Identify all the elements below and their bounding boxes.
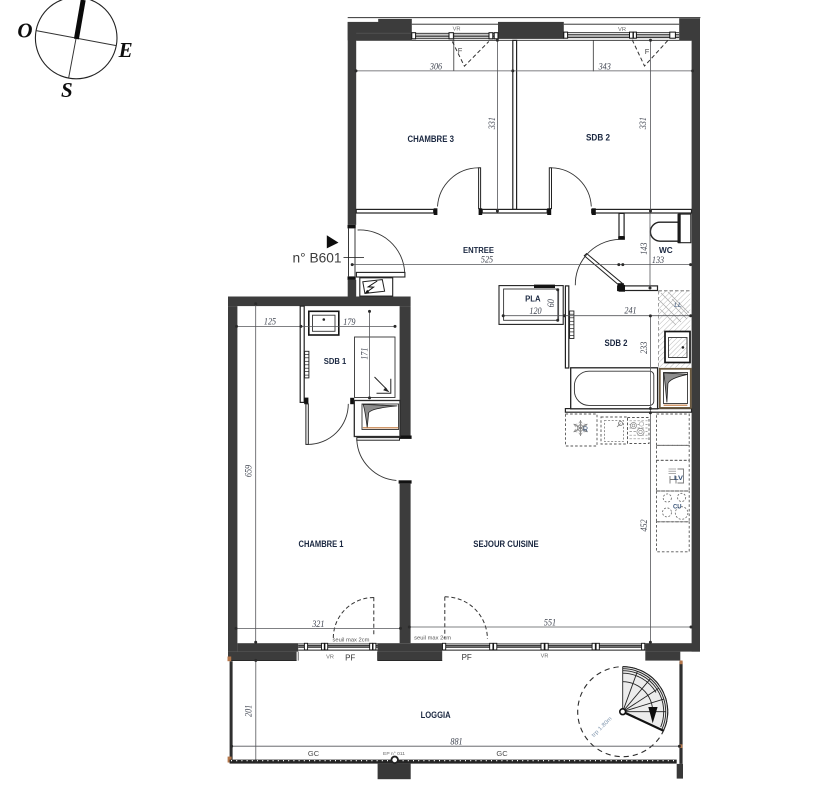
svg-text:F: F — [458, 46, 463, 55]
svg-text:881: 881 — [450, 737, 462, 747]
svg-text:CU: CU — [673, 504, 682, 511]
svg-text:SDB 1: SDB 1 — [324, 356, 347, 366]
svg-text:PLA: PLA — [525, 293, 541, 303]
svg-text:CHAMBRE 3: CHAMBRE 3 — [407, 133, 454, 144]
svg-text:233: 233 — [639, 341, 649, 354]
svg-text:LV: LV — [674, 475, 684, 482]
svg-text:VR: VR — [541, 654, 549, 660]
svg-text:VR: VR — [453, 26, 461, 32]
svg-text:125: 125 — [264, 317, 277, 327]
svg-text:PF: PF — [462, 653, 472, 662]
svg-text:331: 331 — [638, 117, 648, 130]
svg-text:321: 321 — [311, 619, 324, 629]
svg-text:452: 452 — [639, 519, 649, 532]
svg-text:PF: PF — [345, 653, 355, 662]
svg-text:ENTREE: ENTREE — [463, 245, 494, 255]
svg-text:LOGGIA: LOGGIA — [421, 709, 451, 720]
svg-text:551: 551 — [544, 618, 556, 628]
svg-text:SDB 2: SDB 2 — [605, 337, 628, 348]
svg-text:171: 171 — [360, 348, 370, 360]
svg-text:VR: VR — [618, 27, 626, 33]
svg-text:VR: VR — [326, 654, 334, 660]
svg-text:EP n° 011: EP n° 011 — [383, 751, 405, 756]
svg-text:306: 306 — [429, 61, 442, 71]
svg-text:S: S — [61, 78, 73, 102]
svg-text:seuil max 2cm: seuil max 2cm — [414, 636, 451, 642]
svg-text:WC: WC — [659, 245, 673, 255]
svg-text:R: R — [583, 427, 588, 434]
svg-text:525: 525 — [481, 255, 494, 265]
svg-text:120: 120 — [529, 306, 542, 316]
svg-text:343: 343 — [598, 61, 611, 71]
svg-text:CHAMBRE 1: CHAMBRE 1 — [299, 539, 344, 549]
svg-text:GC: GC — [496, 749, 508, 758]
svg-text:143: 143 — [639, 242, 649, 255]
svg-text:201: 201 — [244, 705, 254, 717]
svg-text:n° B601: n° B601 — [293, 250, 342, 265]
svg-text:SEJOUR CUISINE: SEJOUR CUISINE — [473, 539, 538, 549]
svg-text:O: O — [17, 19, 32, 43]
svg-text:seuil max 2cm: seuil max 2cm — [333, 637, 370, 643]
svg-text:331: 331 — [487, 117, 497, 130]
svg-text:133: 133 — [652, 255, 665, 265]
svg-text:241: 241 — [624, 305, 636, 315]
svg-text:E: E — [118, 38, 133, 62]
svg-text:F: F — [645, 47, 650, 56]
svg-text:659: 659 — [244, 465, 254, 478]
svg-text:SDB 2: SDB 2 — [586, 131, 610, 142]
svg-text:60: 60 — [546, 299, 556, 308]
svg-text:179: 179 — [343, 317, 356, 327]
svg-text:GC: GC — [308, 749, 320, 758]
svg-text:LL: LL — [674, 302, 682, 309]
